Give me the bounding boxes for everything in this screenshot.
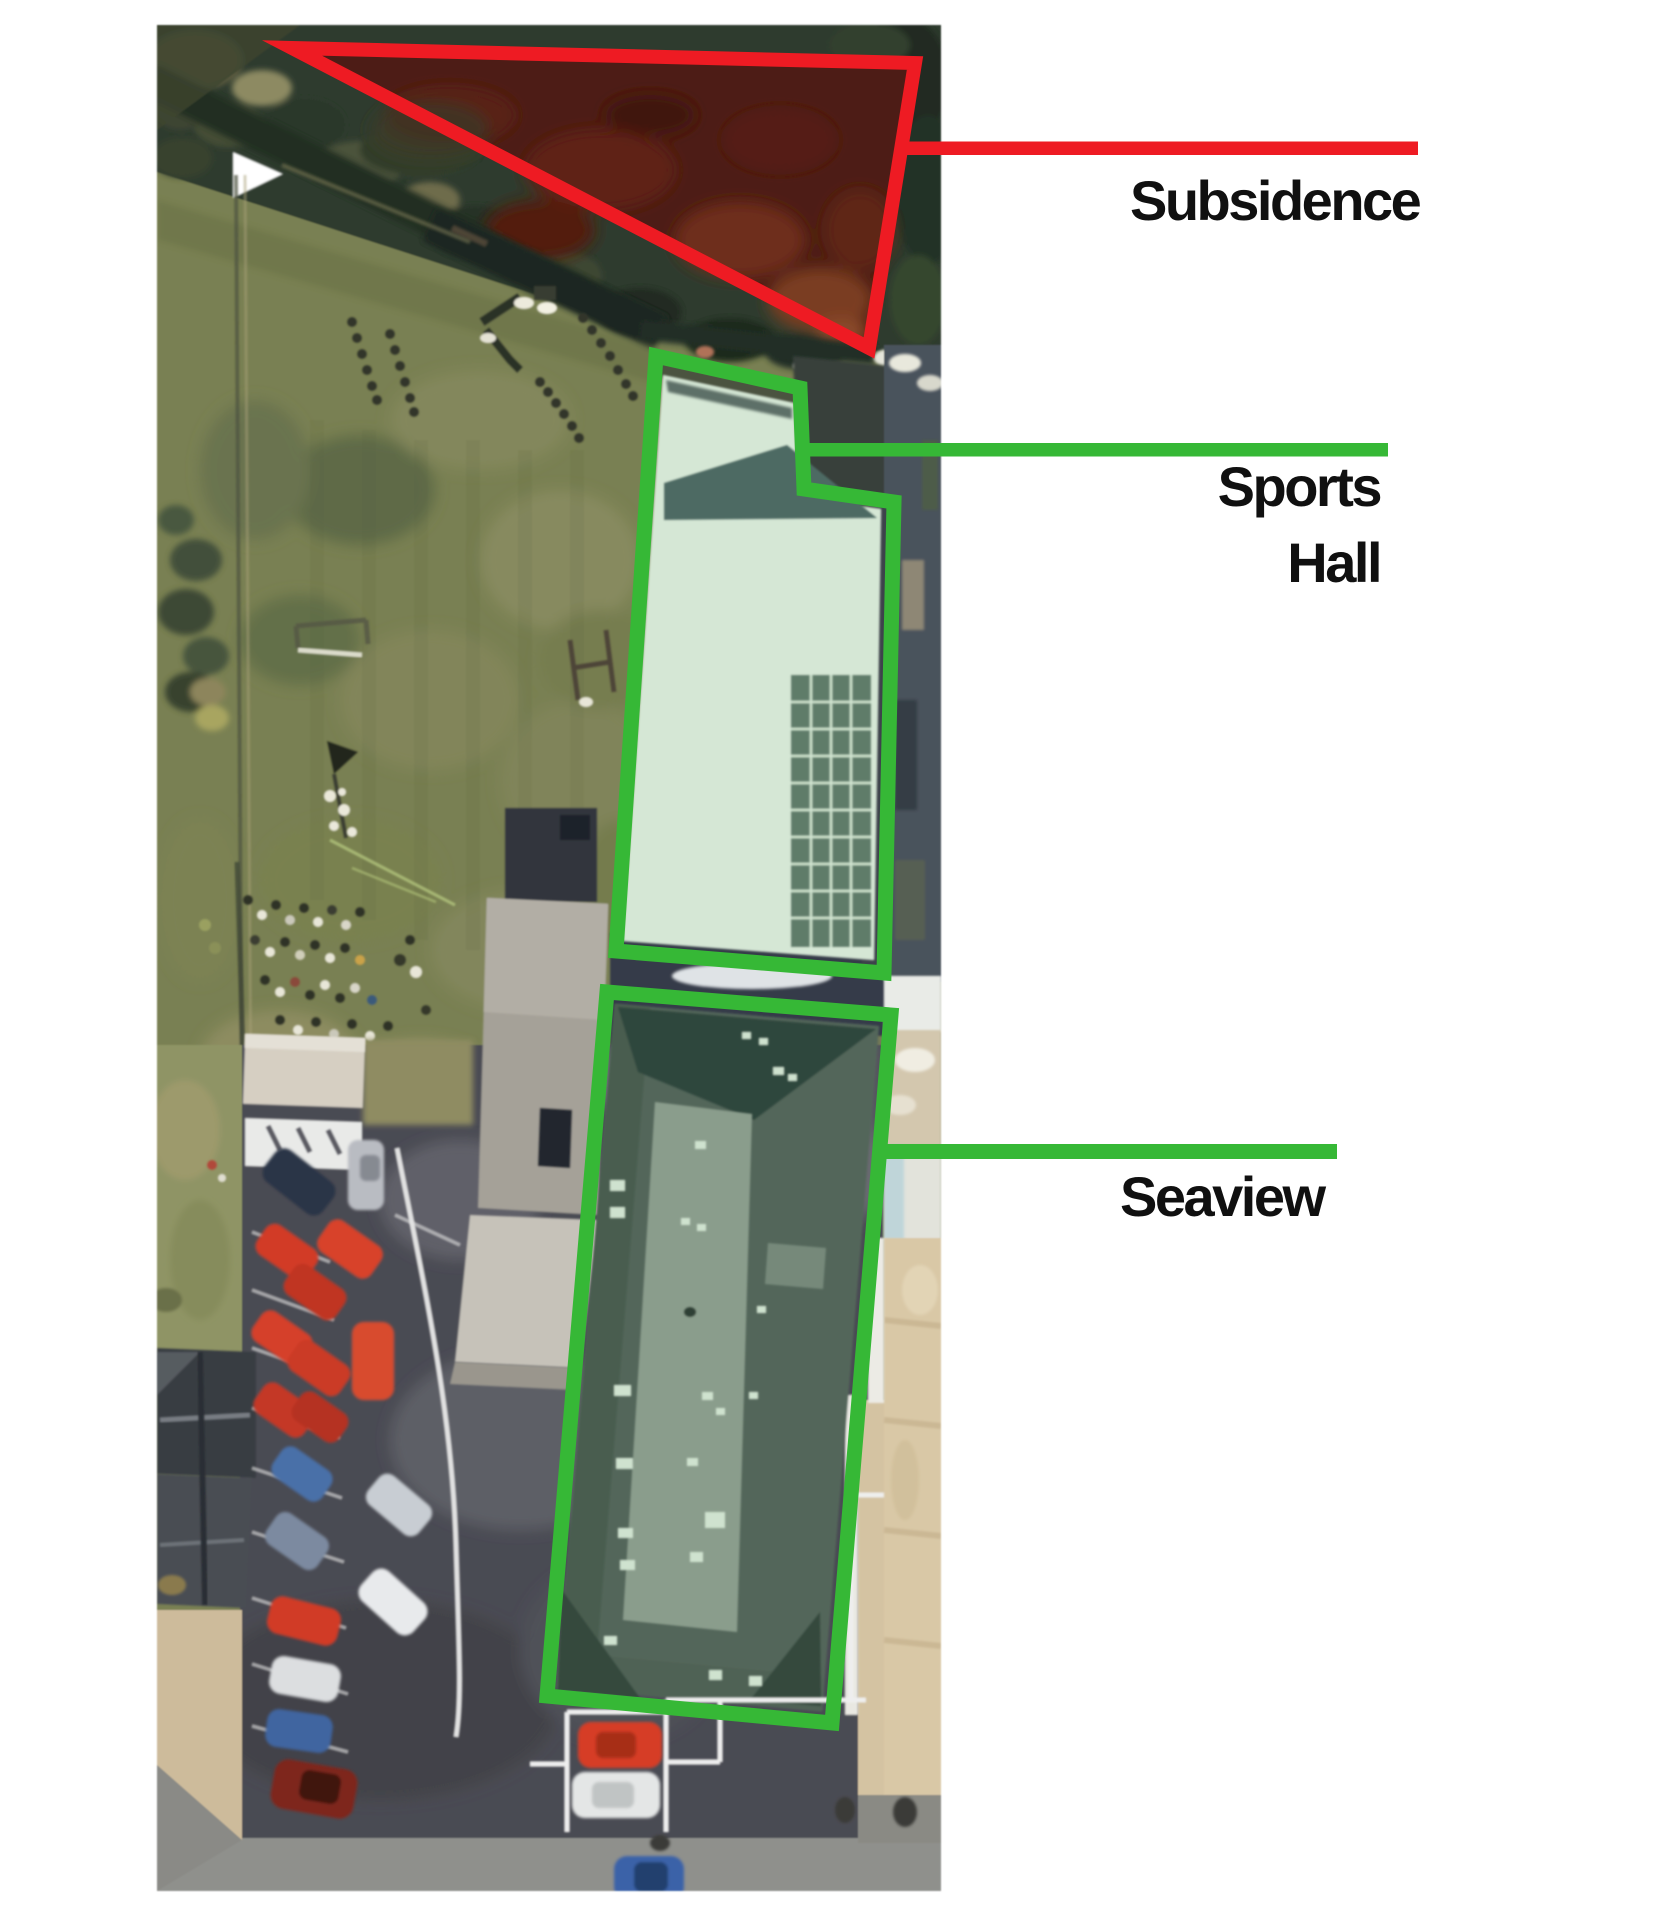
svg-text:Hall: Hall (1287, 531, 1380, 594)
svg-text:Sports: Sports (1218, 455, 1381, 518)
svg-text:Subsidence: Subsidence (1130, 169, 1421, 232)
svg-text:Seaview: Seaview (1120, 1165, 1326, 1228)
